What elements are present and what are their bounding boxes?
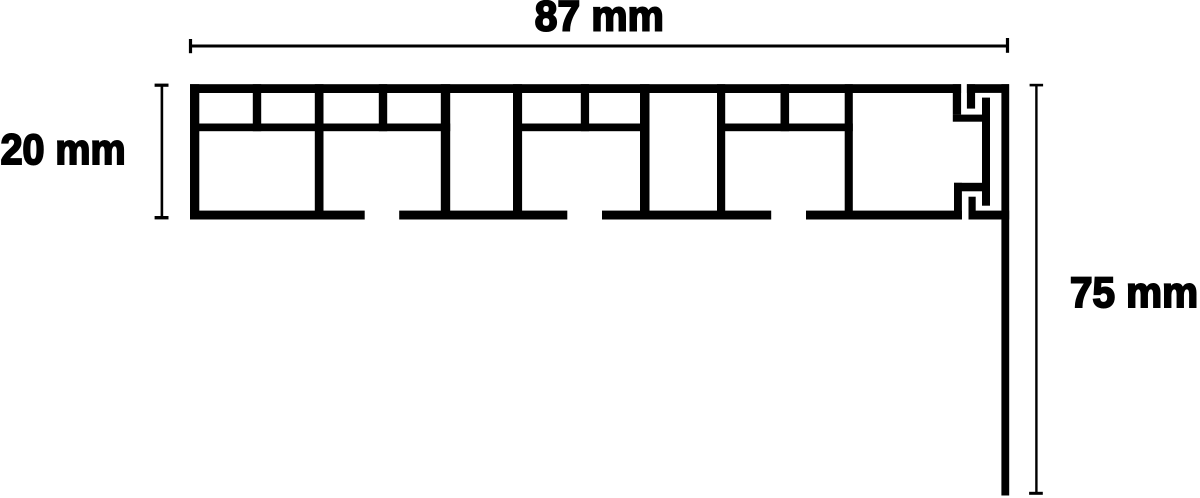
svg-text:87 mm: 87 mm — [535, 0, 664, 41]
svg-text:20 mm: 20 mm — [1, 126, 126, 174]
svg-text:75 mm: 75 mm — [1070, 269, 1198, 317]
